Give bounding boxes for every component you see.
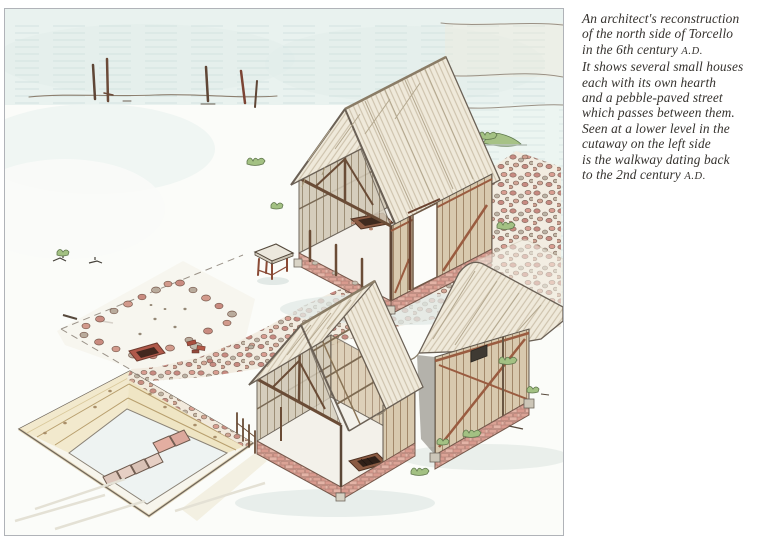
figure-frame	[4, 8, 564, 536]
caption-line: and a pebble-paved street	[582, 90, 770, 105]
caption-line: of the north side of Torcello	[582, 26, 770, 41]
caption: An architect's reconstructionof the nort…	[582, 11, 770, 184]
caption-line: It shows several small houses	[582, 59, 770, 74]
caption-line: in the 6th century A.D.	[582, 42, 770, 59]
caption-line: each with its own hearth	[582, 75, 770, 90]
caption-line: to the 2nd century A.D.	[582, 167, 770, 184]
caption-line: is the walkway dating back	[582, 152, 770, 167]
caption-line: An architect's reconstruction	[582, 11, 770, 26]
caption-line: which passes between them.	[582, 105, 770, 120]
caption-line: cutaway on the left side	[582, 136, 770, 151]
caption-line: Seen at a lower level in the	[582, 121, 770, 136]
illustration	[5, 9, 563, 535]
